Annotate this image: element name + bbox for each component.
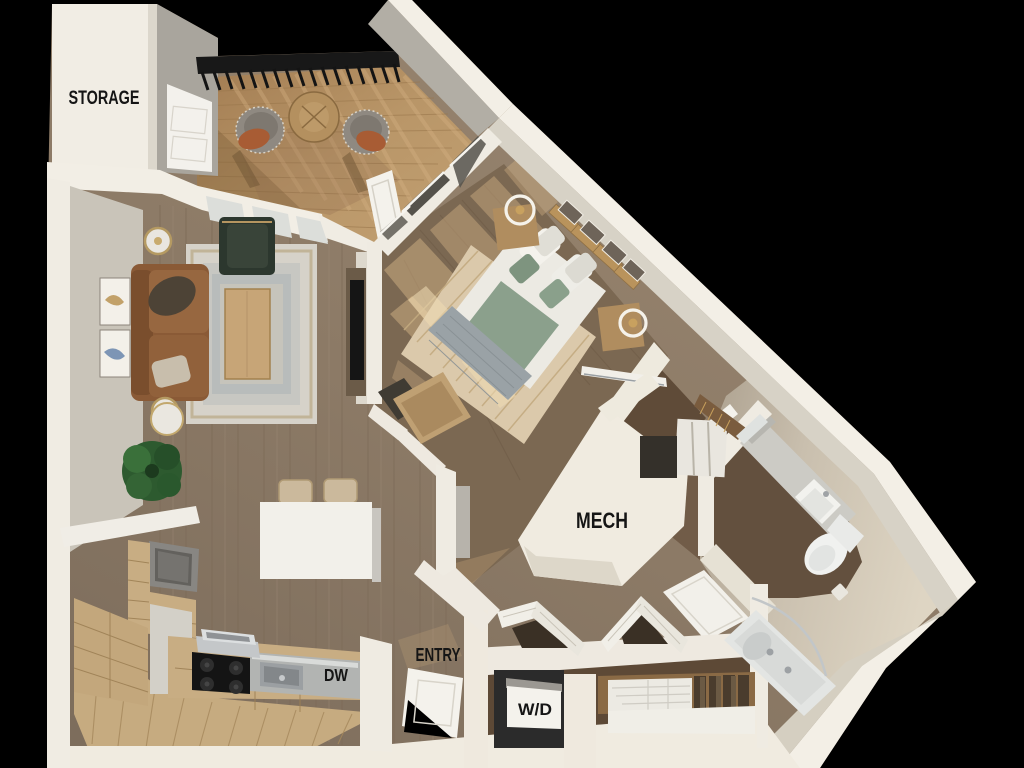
svg-text:W/D: W/D (518, 700, 552, 719)
svg-text:MECH: MECH (576, 508, 628, 533)
svg-text:STORAGE: STORAGE (69, 88, 140, 109)
svg-text:DW: DW (324, 665, 348, 685)
svg-text:ENTRY: ENTRY (416, 644, 461, 665)
